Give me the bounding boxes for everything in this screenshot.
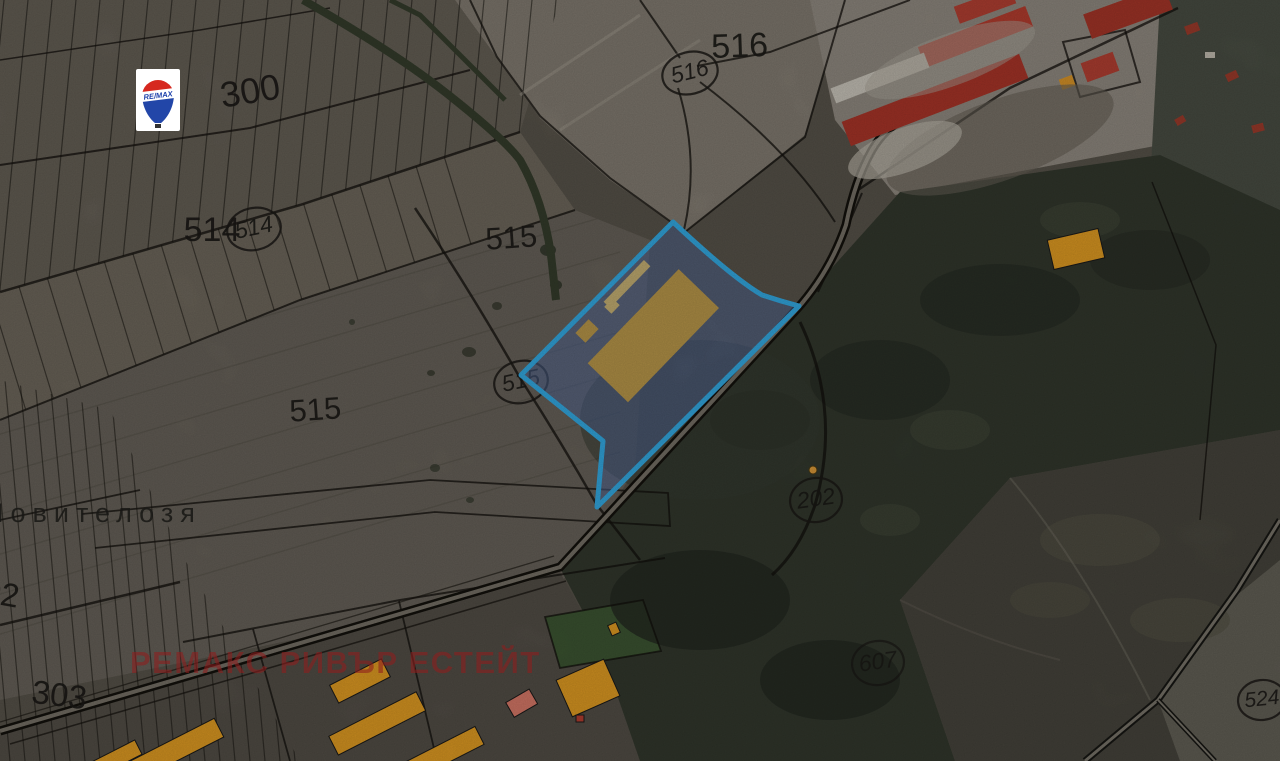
map-canvas[interactable]: 515 300 516 514 515 515 302 303 Новитело… <box>0 0 1280 761</box>
remax-logo: RE/MAX <box>136 69 180 131</box>
watermark: РЕМАКС РИВЪР ЕСТЕЙТ <box>130 644 541 680</box>
balloon-basket <box>155 124 161 128</box>
satellite-map[interactable]: 515 300 516 514 515 515 302 303 Новитело… <box>0 0 1280 761</box>
